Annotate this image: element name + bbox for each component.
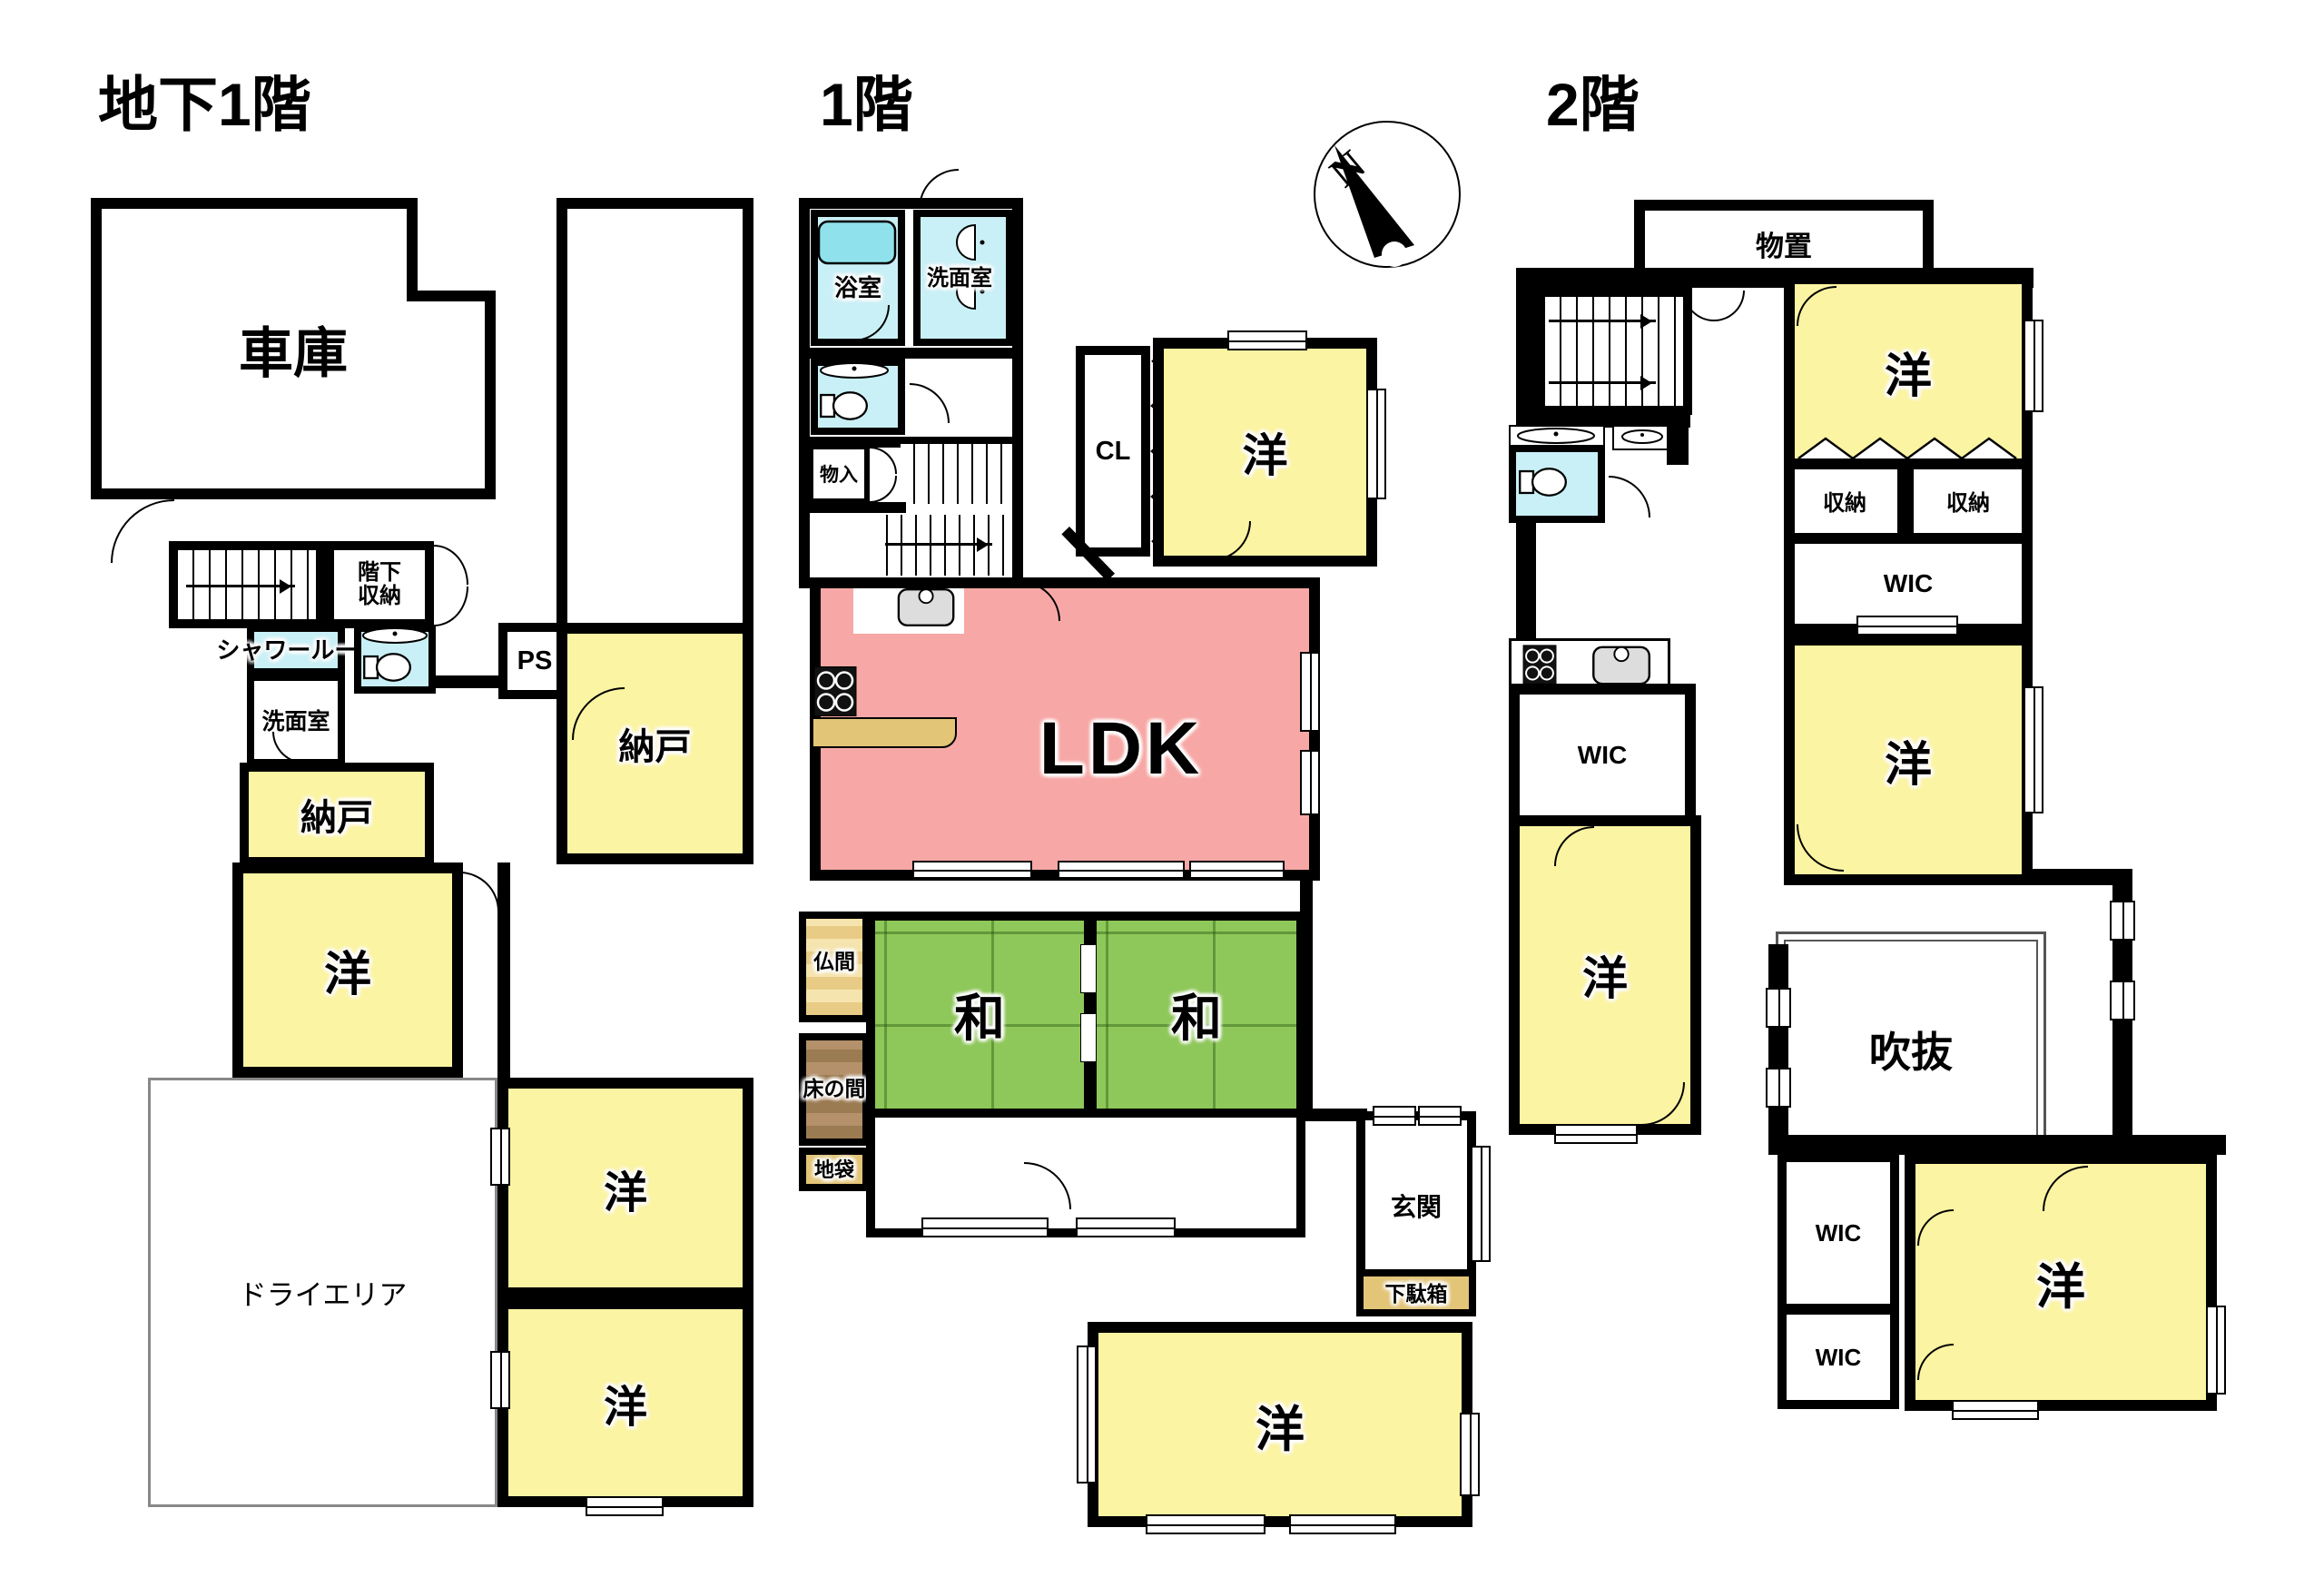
sliding-door: [1080, 944, 1097, 993]
b1f-label-storeroom-a: 納戸: [249, 772, 425, 857]
f1-label-jibukuro: 地袋: [799, 1155, 870, 1182]
door-arc: [111, 499, 174, 563]
window: [1952, 1400, 2039, 1420]
window: [1189, 861, 1285, 879]
stove-fixture: [813, 665, 857, 717]
window: [490, 1351, 510, 1409]
b1f-entry-area: [556, 198, 753, 637]
f2-label-western-w: 洋: [1520, 826, 1690, 1124]
window: [1766, 1068, 1791, 1108]
f2-stairs: [1536, 288, 1692, 415]
f1-label-bath: 浴室: [811, 272, 905, 300]
window: [1366, 389, 1386, 499]
window: [1300, 750, 1320, 815]
garage-notch: [407, 198, 496, 301]
f2-label-fukinuke: 吹抜: [1843, 1026, 1979, 1073]
f1-label-storage: 物入: [813, 449, 864, 498]
b1f-label-dry-area: ドライエリア: [151, 1080, 495, 1504]
f1-room-closet: CL: [1076, 346, 1150, 557]
stairs-arrow-icon: [885, 543, 992, 546]
b1f-label-western-b: 洋: [508, 1089, 743, 1287]
kitchen-island-counter: [812, 717, 957, 748]
sliding-door: [1856, 616, 1958, 636]
f2-label-closet-b: 収納: [1917, 487, 2019, 514]
f1-label-genkan: 玄関: [1356, 1191, 1476, 1220]
b1f-room-storeroom-a: 納戸: [240, 763, 434, 866]
window: [586, 1496, 664, 1516]
compass-icon: N: [1304, 111, 1471, 278]
f1-stairs-upper: [901, 444, 1012, 504]
b1f-label-under-stairs: 階下収納: [352, 561, 407, 609]
toilet-fixture: [819, 385, 870, 427]
door-arc: [919, 169, 959, 209]
wall-segment: [1667, 410, 1689, 465]
door-fan: [1714, 291, 1745, 321]
b1f-dry-area: ドライエリア: [148, 1078, 497, 1507]
wall-segment: [497, 862, 510, 1078]
wall-segment: [1897, 458, 1914, 544]
b1f-label-ps: PS: [507, 632, 562, 690]
b1f-room-western-c: 洋: [497, 1298, 753, 1507]
f2-label-closet-a: 収納: [1797, 487, 1892, 514]
stairs-arrow-icon: [1549, 381, 1656, 384]
toilet-fixture: [361, 646, 414, 688]
f1-room-western-ne: 洋: [1153, 338, 1377, 567]
sink-fixture: [1514, 427, 1598, 445]
f1-label-japanese-a: 和: [875, 921, 1084, 1109]
f2-room-wic-sw-a: WIC: [1777, 1153, 1899, 1313]
kitchen-sink-fixture: [1587, 642, 1658, 687]
window: [1289, 1514, 1396, 1534]
window: [1146, 1514, 1265, 1534]
b1f-title: 地下1階: [98, 56, 311, 143]
stove-fixture: [1518, 645, 1561, 685]
window: [2110, 981, 2135, 1020]
window: [1766, 988, 1791, 1028]
b1f-label-storeroom-b: 納戸: [567, 634, 743, 853]
door-arc: [459, 872, 499, 912]
b1f-room-western-b: 洋: [497, 1078, 753, 1298]
window: [1300, 652, 1320, 732]
window: [1076, 1217, 1176, 1237]
f2-label-wic-sw-a: WIC: [1787, 1162, 1890, 1304]
f1-label-closet: CL: [1085, 355, 1141, 547]
entry-door: [1418, 1106, 1462, 1126]
f1-label-getabako: 下駄箱: [1356, 1278, 1476, 1306]
f1-label-butsuma: 仏間: [799, 946, 870, 973]
f2-label-wic-w: WIC: [1520, 695, 1685, 815]
f1-room-storage: 物入: [808, 444, 870, 504]
window: [1227, 330, 1307, 350]
door-arc: [1609, 476, 1650, 517]
wall-segment: [804, 502, 906, 513]
kitchen-sink-fixture: [897, 583, 957, 630]
f1-label-western-s: 洋: [1098, 1333, 1462, 1516]
window: [1460, 1413, 1480, 1496]
f1-label-western-ne: 洋: [1164, 349, 1366, 556]
window: [2110, 901, 2135, 941]
f2-label-wic-sw-b: WIC: [1787, 1315, 1890, 1400]
f2-room-wic-w: WIC: [1509, 684, 1696, 826]
sink-fixture: [1620, 429, 1665, 445]
b1f-room-storeroom-b: 納戸: [556, 623, 753, 864]
f1-label-japanese-b: 和: [1097, 921, 1296, 1109]
floorplan-canvas: 地下1階 車庫 階下収納 PS シャワールーム 洗面室 納戸 納戸 洋 ドライエ…: [0, 0, 2324, 1587]
bathtub-fixture: [817, 220, 897, 265]
toilet-fixture: [1518, 461, 1569, 503]
f2-room-wic-sw-b: WIC: [1777, 1306, 1899, 1409]
sink-fixture: [359, 626, 430, 645]
sink-fixture: [817, 361, 891, 379]
f1-room-japanese-a: 和: [866, 912, 1093, 1118]
wall-segment: [1768, 944, 1788, 1137]
entry-door: [1373, 1106, 1416, 1126]
wall-segment: [434, 675, 503, 688]
wall-segment: [1768, 1135, 2226, 1155]
window: [921, 1217, 1049, 1237]
window: [1058, 861, 1185, 879]
window: [1471, 1146, 1491, 1262]
b1f-label-washroom: 洗面室: [247, 706, 345, 734]
door-fan: [434, 545, 468, 585]
folding-door-icon: [1798, 437, 2018, 460]
window: [1554, 1124, 1638, 1144]
f1-room-japanese-b: 和: [1088, 912, 1305, 1118]
door-fan: [434, 586, 468, 626]
b1f-room-western-a: 洋: [232, 862, 463, 1078]
f1-title: 1階: [820, 56, 913, 143]
window: [2024, 686, 2043, 813]
window: [2206, 1306, 2226, 1395]
wall-segment: [1300, 877, 1313, 1111]
b1f-label-western-a: 洋: [243, 873, 452, 1067]
b1f-label-western-c: 洋: [508, 1309, 743, 1496]
sliding-door: [1080, 1013, 1097, 1062]
stairs-arrow-icon: [1549, 320, 1656, 322]
f1-room-western-s: 洋: [1088, 1322, 1472, 1527]
window: [1077, 1345, 1097, 1483]
window: [912, 861, 1032, 879]
b1f-room-under-stairs: 階下収納: [325, 541, 434, 628]
window: [2024, 320, 2043, 412]
window: [490, 1128, 510, 1186]
f2-label-wic-ne: WIC: [1795, 544, 2022, 624]
f1-label-washroom: 洗面室: [910, 261, 1009, 289]
stairs-arrow-icon: [186, 585, 295, 587]
sink-fixture: [973, 223, 1000, 261]
f1-label-ldk: LDK: [999, 699, 1244, 799]
f2-title: 2階: [1546, 56, 1640, 143]
